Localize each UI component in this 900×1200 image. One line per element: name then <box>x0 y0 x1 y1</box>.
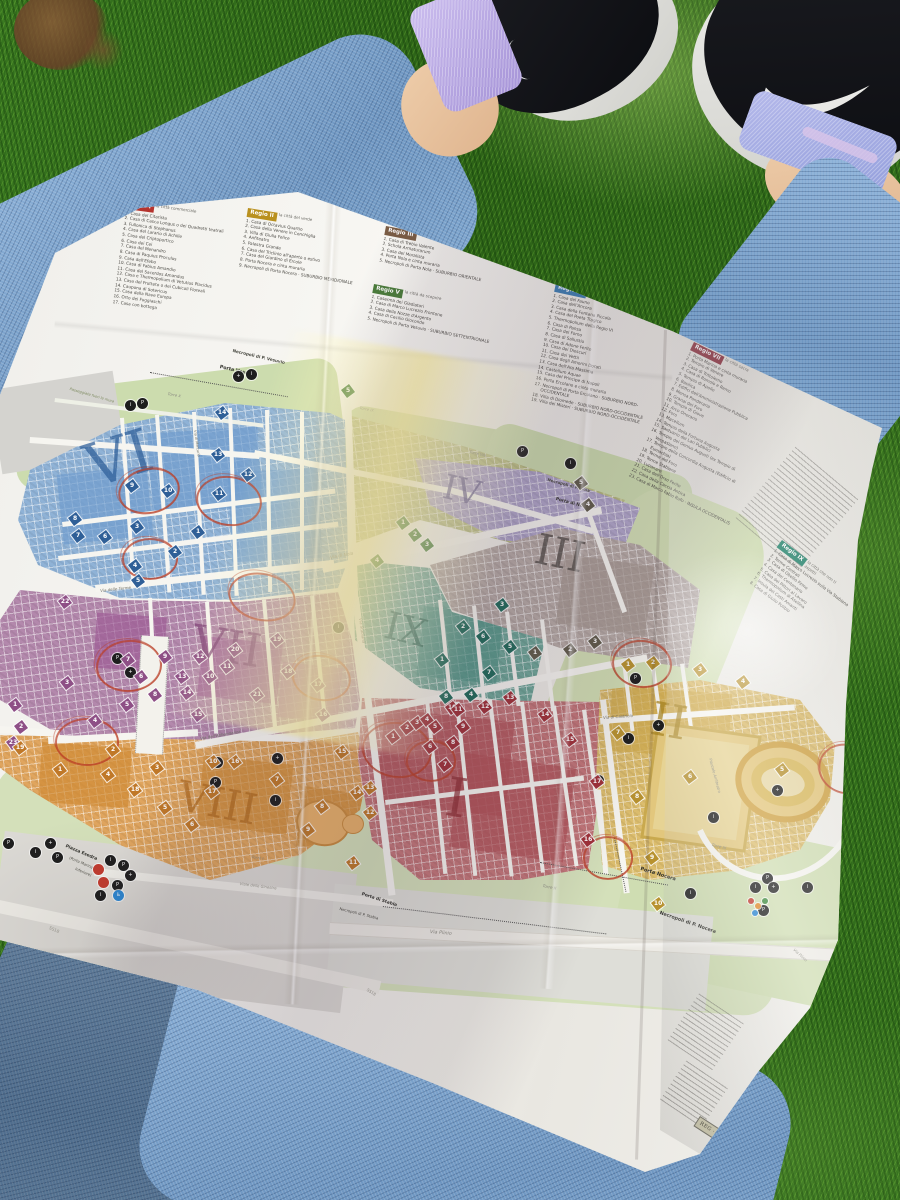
facility-icon: i <box>708 812 719 823</box>
facility-icon: i <box>750 882 761 893</box>
facility-icon: i <box>802 882 813 893</box>
legend-regio-v: Regio Vla città da scoprire 1. Caserma d… <box>367 284 500 345</box>
facility-icon: + <box>45 838 56 849</box>
facility-icon: i <box>125 400 136 411</box>
site-marker: 5 <box>341 384 355 398</box>
facility-icon: + <box>653 720 664 731</box>
facility-icon <box>752 910 758 916</box>
facility-icon <box>98 877 109 888</box>
facility-icon: i <box>246 369 257 380</box>
facility-icon: P <box>52 852 63 863</box>
facility-icon: i <box>270 795 281 806</box>
region-numeral-III: III <box>531 528 588 579</box>
region-numeral-IX: IX <box>381 606 431 653</box>
site-marker: 2 <box>408 528 422 542</box>
facility-icon: P <box>137 398 148 409</box>
facility-icon: P <box>3 838 14 849</box>
facility-icon: i <box>95 890 106 901</box>
facility-icon <box>762 898 768 904</box>
region-numeral-IV: IV <box>439 470 484 512</box>
facility-icon: P <box>630 673 641 684</box>
facility-icon: P <box>118 860 129 871</box>
red-annotation-circle <box>122 538 178 580</box>
legend-subtitle: la città commerciale <box>156 204 204 215</box>
facility-icon: i <box>30 847 41 858</box>
red-annotation-circle <box>55 718 119 766</box>
facility-icon: P <box>517 446 528 457</box>
facility-icon <box>93 864 104 875</box>
legend-regio-i: Regio Ila città commerciale 1. Casa del … <box>112 200 243 321</box>
facility-icon: i <box>623 733 634 744</box>
facility-icon: + <box>272 753 283 764</box>
facility-icon <box>748 898 754 904</box>
legend-regio-ii: Regio IIla città del verde 1. Casa di Oc… <box>239 208 379 288</box>
facility-icon: + <box>772 785 783 796</box>
info-paragraph-lines <box>660 1058 729 1127</box>
facility-icon: i <box>105 855 116 866</box>
facility-icon: + <box>233 371 244 382</box>
site-marker: 4 <box>736 675 750 689</box>
odeon <box>342 814 364 834</box>
facility-icon: + <box>768 882 779 893</box>
facility-icon <box>755 903 761 909</box>
map-label: Necropoli di P. Vesuvio <box>232 349 285 365</box>
dry-plant-small <box>80 30 125 70</box>
photo-scene: VIIVIIIIXVIIVIIIIIINecropoli di P. Vesuv… <box>0 0 900 1200</box>
facility-icon: + <box>125 870 136 881</box>
facility-icon: i <box>565 458 576 469</box>
facility-icon: i <box>333 622 344 633</box>
facility-icon: ♿ <box>113 890 124 901</box>
facility-icon: i <box>685 888 696 899</box>
legend-list: 1. Casa del Citarista2. Casa di Casca Lo… <box>112 210 242 321</box>
